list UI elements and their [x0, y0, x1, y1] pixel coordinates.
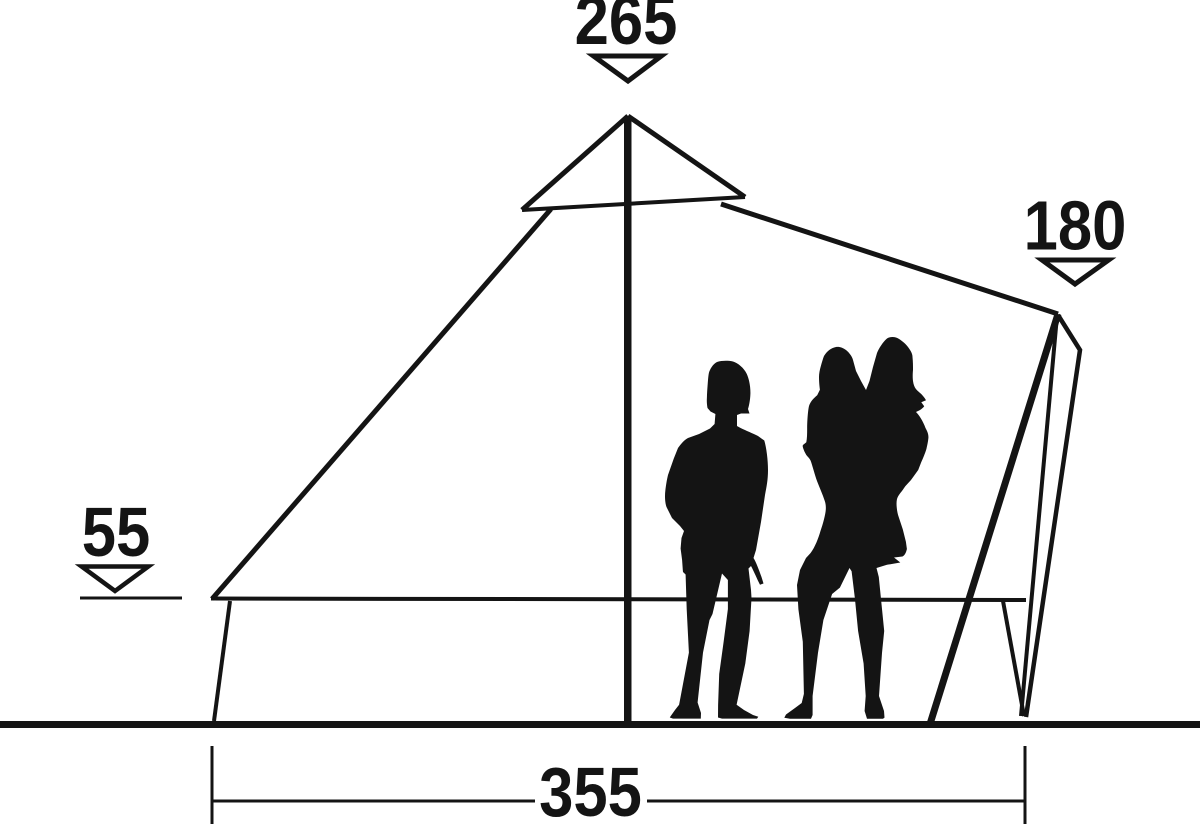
svg-text:55: 55	[82, 492, 151, 571]
svg-text:355: 355	[539, 752, 642, 829]
svg-text:180: 180	[1024, 186, 1127, 265]
svg-text:265: 265	[575, 0, 678, 59]
